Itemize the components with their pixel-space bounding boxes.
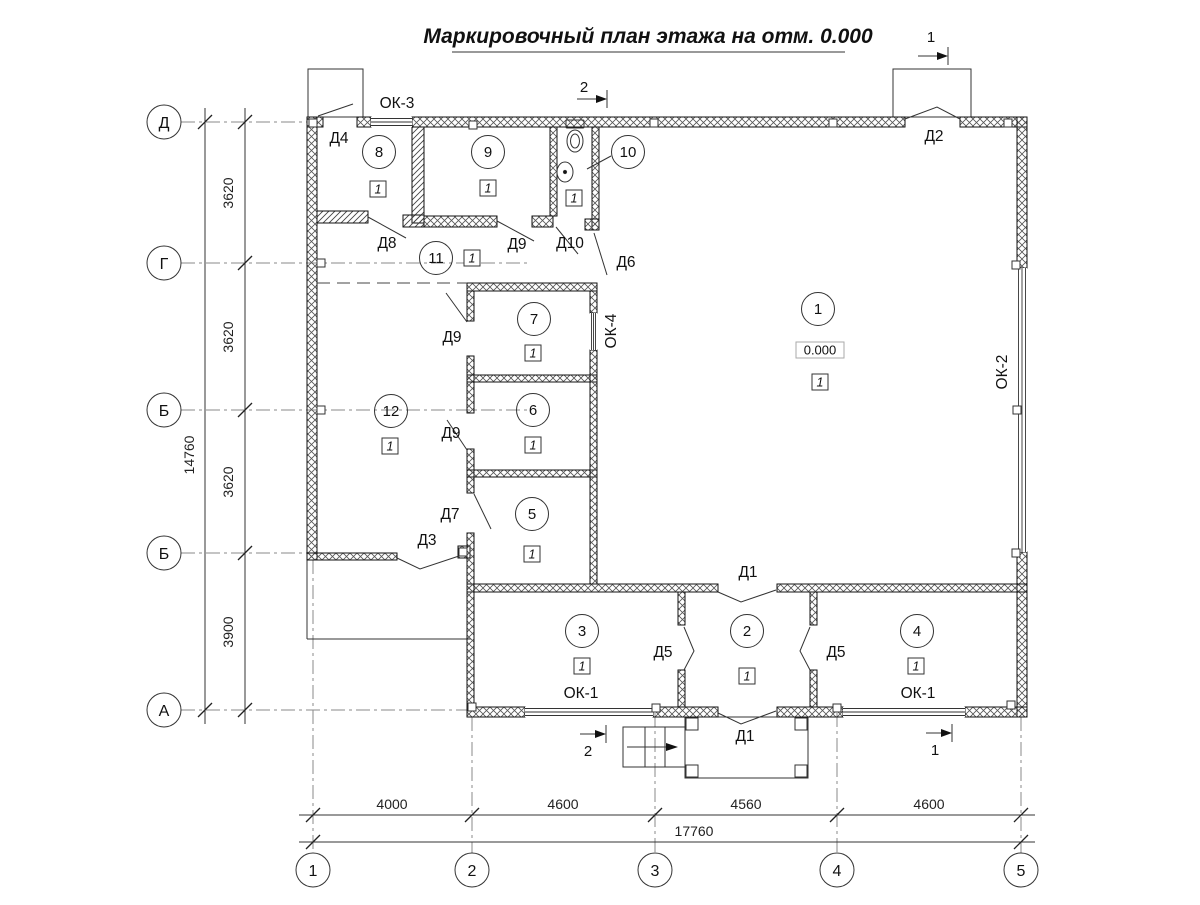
door-label-d9: Д9 [507, 236, 526, 253]
finish-mark: 1 [744, 670, 751, 684]
door-label-d5: Д5 [826, 644, 845, 661]
porches-and-steps [307, 69, 971, 778]
window-label-ok2: ОК-2 [994, 355, 1011, 390]
axis-label-b2: Б [159, 546, 170, 563]
door-label-d9: Д9 [441, 425, 460, 442]
room-number-6: 6 [529, 402, 537, 419]
dim-left-2: 3620 [220, 321, 236, 352]
dimension-ticks [198, 115, 1028, 849]
dim-bottom-3: 4560 [730, 796, 761, 812]
door-label-d4: Д4 [329, 130, 348, 147]
section-label-1: 1 [931, 742, 939, 759]
room-number-11: 11 [428, 250, 444, 267]
finish-mark: 1 [579, 660, 586, 674]
section-label-2: 2 [584, 743, 592, 760]
dim-left-3: 3620 [220, 466, 236, 497]
room-number-9: 9 [484, 144, 492, 161]
finish-mark: 1 [530, 439, 537, 453]
drawing-title: Маркировочный план этажа на отм. 0.000 [423, 25, 873, 48]
dim-left-total: 14760 [181, 435, 197, 474]
dim-bottom-total: 17760 [675, 823, 714, 839]
window-label-ok3: ОК-3 [380, 95, 415, 112]
door-label-d6: Д6 [616, 254, 635, 271]
axis-label-b1: Б [159, 403, 170, 420]
door-label-d1: Д1 [738, 564, 757, 581]
door-label-d1: Д1 [735, 728, 754, 745]
section-label-2: 2 [580, 79, 588, 96]
finish-mark: 1 [387, 440, 394, 454]
door-label-d10: Д10 [556, 235, 584, 252]
axis-label-d: Д [159, 115, 170, 132]
axis-label-2: 2 [468, 863, 477, 880]
dim-bottom-1: 4000 [376, 796, 407, 812]
room-number-4: 4 [913, 623, 921, 640]
axis-label-a: А [159, 703, 170, 720]
window-label-ok4: ОК-4 [603, 313, 620, 348]
dim-bottom-4: 4600 [913, 796, 944, 812]
dim-left-4: 3900 [220, 616, 236, 647]
room-number-5: 5 [528, 506, 536, 523]
room-number-12: 12 [383, 403, 400, 420]
section-marks: 2 1 2 1 [577, 29, 952, 760]
axis-label-5: 5 [1017, 863, 1026, 880]
axis-label-4: 4 [833, 863, 842, 880]
elevation-value: 0.000 [804, 343, 837, 358]
door-label-d3: Д3 [417, 532, 436, 549]
finish-mark: 1 [913, 660, 920, 674]
section-label-1: 1 [927, 29, 935, 46]
room-number-1: 1 [814, 301, 822, 318]
finish-mark: 1 [571, 192, 578, 206]
dim-bottom-2: 4600 [547, 796, 578, 812]
finish-mark: 1 [529, 548, 536, 562]
room-number-7: 7 [530, 311, 538, 328]
wc-fixtures [557, 120, 584, 182]
room-number-10: 10 [620, 144, 637, 161]
finish-mark: 1 [817, 376, 824, 390]
finish-mark: 1 [530, 347, 537, 361]
door-label-d5: Д5 [653, 644, 672, 661]
door-label-d8: Д8 [377, 235, 396, 252]
finish-mark: 1 [469, 252, 476, 266]
room-markers: 1 2 3 4 5 6 7 8 9 10 11 12 [363, 136, 934, 648]
finish-mark: 1 [485, 182, 492, 196]
room-number-8: 8 [375, 144, 383, 161]
window-label-ok1: ОК-1 [901, 685, 936, 702]
door-label-d2: Д2 [924, 128, 943, 145]
finish-mark: 1 [375, 183, 382, 197]
axis-label-1: 1 [309, 863, 318, 880]
room-number-3: 3 [578, 623, 586, 640]
room-number-2: 2 [743, 623, 751, 640]
door-label-d7: Д7 [440, 506, 459, 523]
floor-plan-sheet: Маркировочный план этажа на отм. 0.000 3… [0, 0, 1200, 900]
opening-labels: ОК-3 Д4 Д2 Д8 Д9 Д10 Д6 ОК-4 ОК-2 Д9 Д9 … [329, 95, 1011, 745]
axis-label-3: 3 [651, 863, 660, 880]
floor-plan-drawing: Маркировочный план этажа на отм. 0.000 3… [0, 0, 1200, 900]
dim-left-1: 3620 [220, 177, 236, 208]
axis-label-g: Г [160, 256, 169, 273]
door-label-d9: Д9 [442, 329, 461, 346]
toilet-bowl-icon [567, 130, 583, 152]
window-label-ok1: ОК-1 [564, 685, 599, 702]
